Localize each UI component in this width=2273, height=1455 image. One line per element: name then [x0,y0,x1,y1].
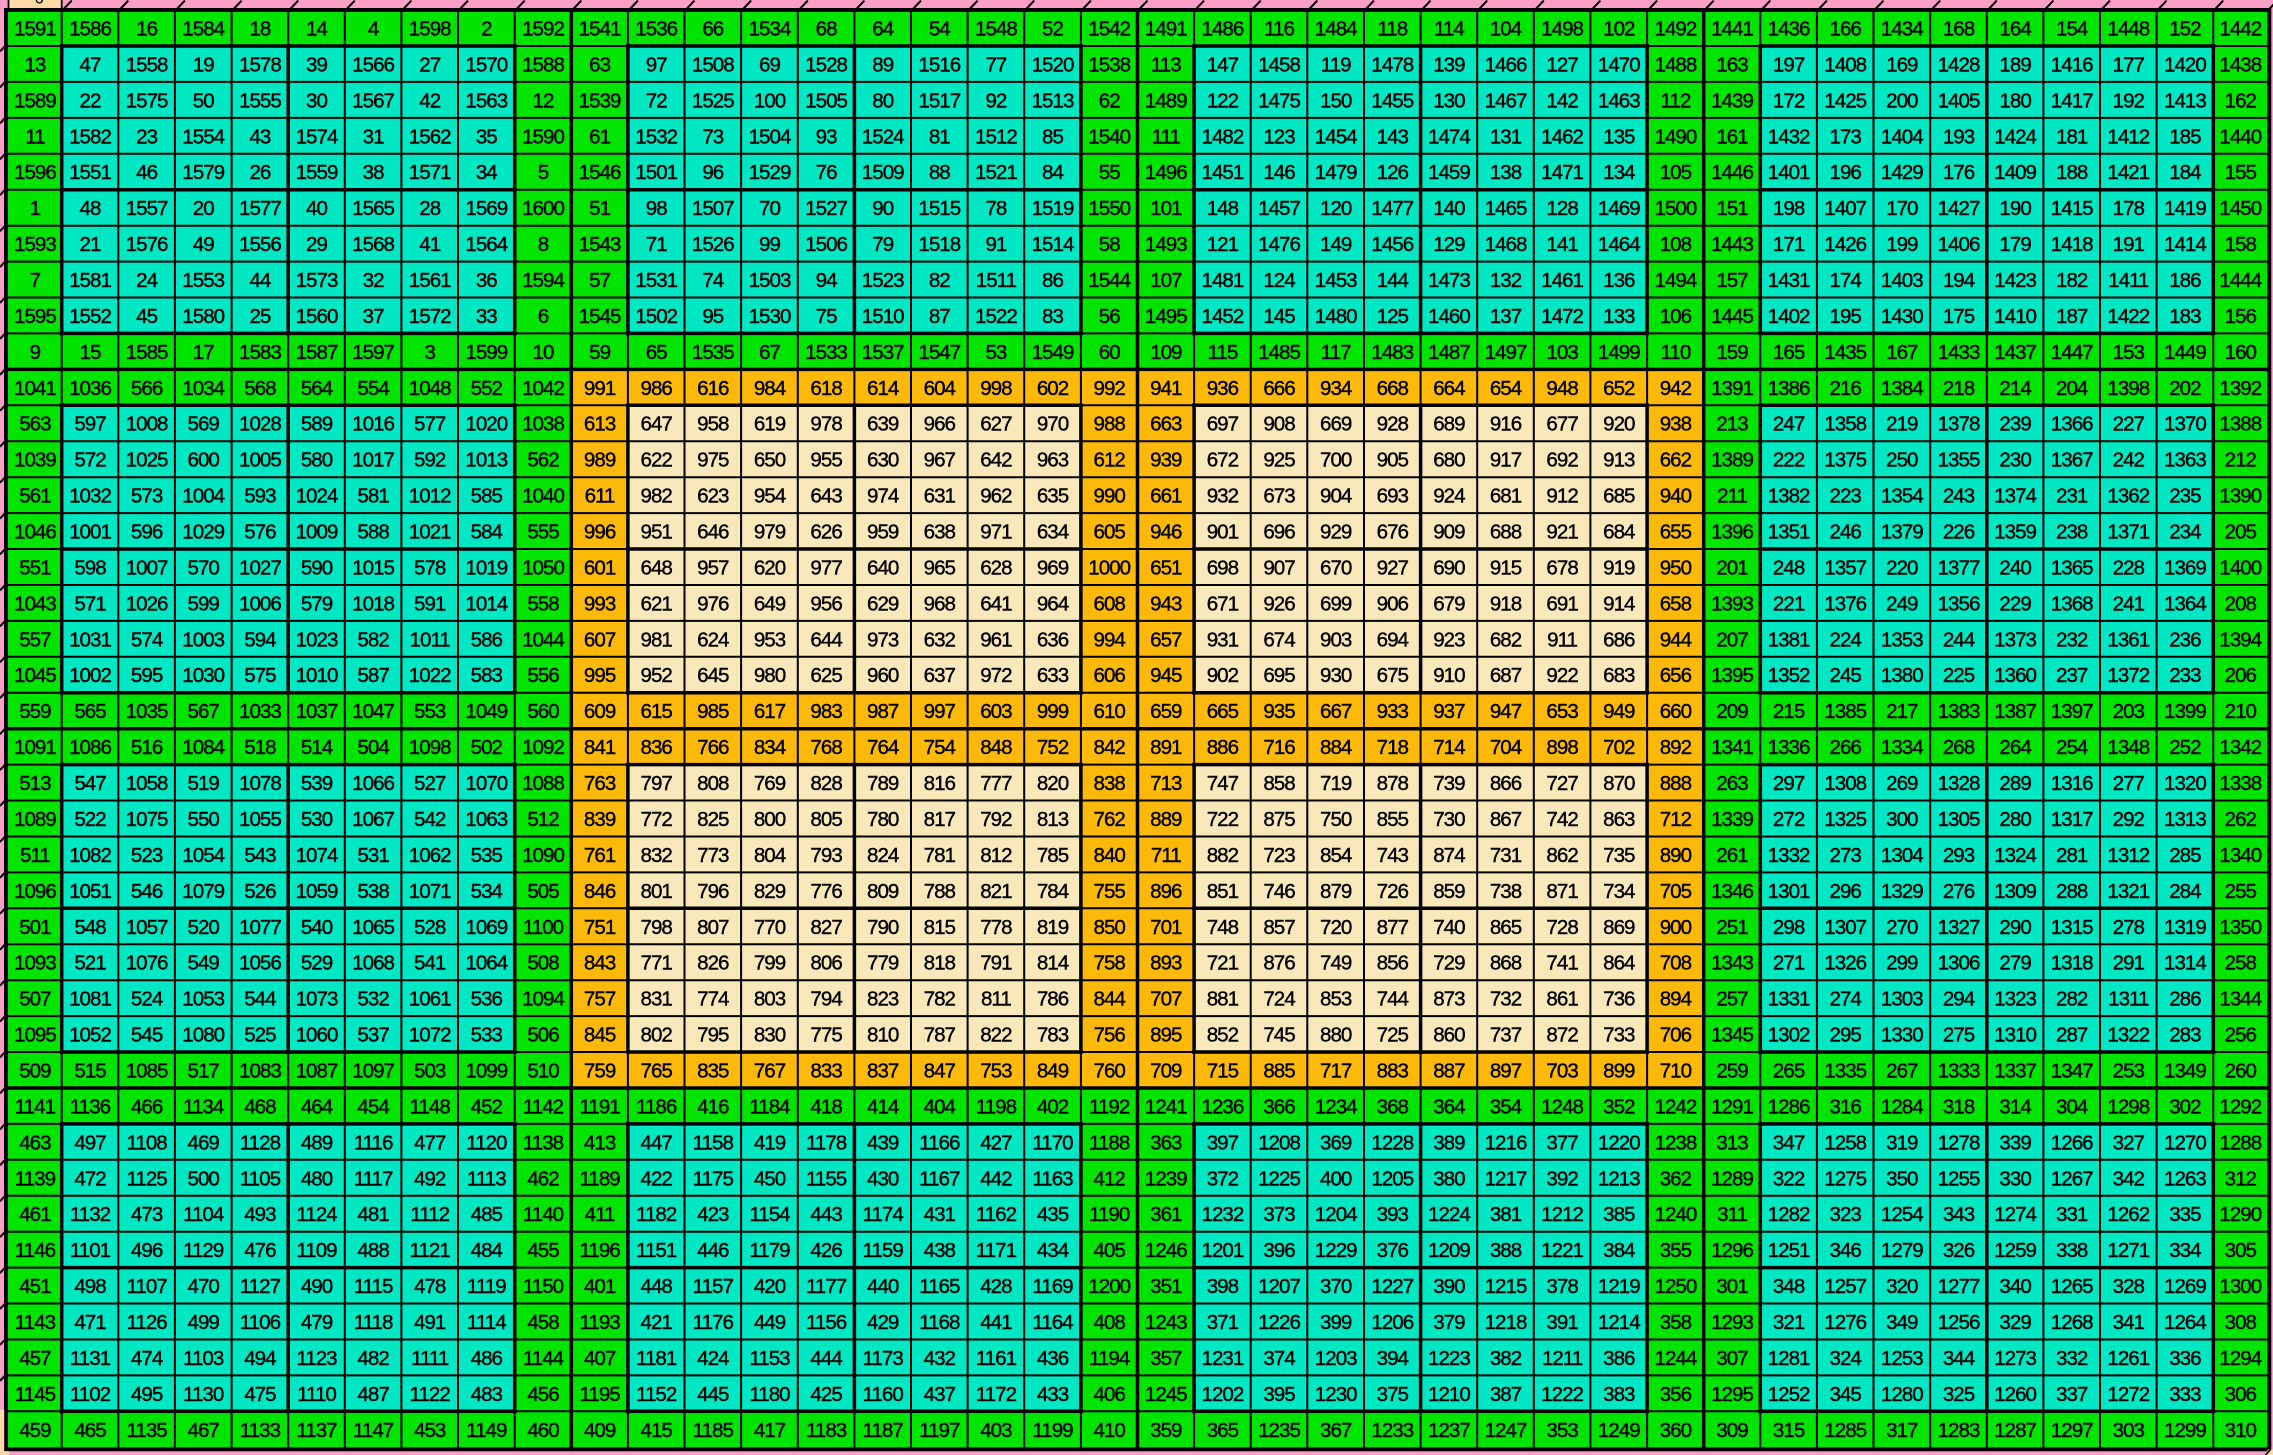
svg-text:698: 698 [1207,557,1239,580]
svg-text:1590: 1590 [522,125,564,148]
svg-text:1536: 1536 [635,18,677,41]
svg-text:849: 849 [1037,1060,1069,1083]
svg-text:1504: 1504 [749,125,791,148]
svg-text:789: 789 [867,772,899,795]
svg-text:1317: 1317 [2051,808,2093,831]
svg-text:1395: 1395 [1711,664,1753,687]
svg-text:110: 110 [1660,341,1690,364]
svg-text:1593: 1593 [14,233,56,256]
svg-text:1076: 1076 [126,952,168,975]
svg-text:688: 688 [1490,521,1522,544]
svg-text:1370: 1370 [2164,413,2206,436]
svg-text:1390: 1390 [2219,485,2261,508]
svg-text:1149: 1149 [466,1419,507,1442]
svg-text:1120: 1120 [466,1131,507,1154]
svg-text:1160: 1160 [863,1383,904,1406]
svg-text:754: 754 [924,736,956,759]
svg-text:1579: 1579 [182,161,224,184]
svg-text:25: 25 [249,305,270,328]
svg-text:59: 59 [589,341,610,364]
svg-text:227: 227 [2113,413,2145,436]
svg-text:1208: 1208 [1258,1131,1300,1154]
svg-text:1224: 1224 [1428,1203,1470,1226]
svg-text:1302: 1302 [1768,1024,1810,1047]
svg-text:1280: 1280 [1881,1383,1923,1406]
svg-text:548: 548 [74,916,106,939]
svg-text:877: 877 [1377,916,1409,939]
svg-text:229: 229 [1999,592,2031,615]
svg-text:778: 778 [980,916,1012,939]
svg-text:764: 764 [867,736,899,759]
svg-text:1598: 1598 [409,18,451,41]
svg-text:562: 562 [527,449,559,472]
svg-text:943: 943 [1150,592,1182,615]
svg-text:1568: 1568 [352,233,394,256]
svg-text:454: 454 [357,1095,389,1118]
svg-text:522: 522 [74,808,106,831]
svg-text:1223: 1223 [1428,1347,1470,1370]
svg-text:659: 659 [1150,700,1182,723]
svg-text:962: 962 [980,485,1012,508]
svg-text:960: 960 [867,664,899,687]
svg-text:876: 876 [1263,952,1295,975]
svg-text:159: 159 [1716,341,1748,364]
svg-text:913: 913 [1603,449,1635,472]
svg-text:285: 285 [2169,844,2201,867]
svg-text:429: 429 [867,1311,899,1334]
svg-text:974: 974 [867,485,899,508]
svg-text:235: 235 [2169,485,2201,508]
svg-text:889: 889 [1150,808,1182,831]
svg-text:917: 917 [1490,449,1522,472]
svg-text:1207: 1207 [1258,1275,1300,1298]
svg-text:333: 333 [2169,1383,2201,1406]
svg-text:466: 466 [131,1095,163,1118]
svg-text:714: 714 [1433,736,1465,759]
svg-text:1036: 1036 [69,377,111,400]
svg-text:619: 619 [754,413,786,436]
svg-text:1274: 1274 [1994,1203,2036,1226]
svg-text:1001: 1001 [69,521,111,544]
svg-text:993: 993 [584,592,616,615]
svg-text:1106: 1106 [240,1311,281,1334]
svg-text:1475: 1475 [1258,89,1300,112]
svg-text:1281: 1281 [1768,1347,1810,1370]
svg-text:1276: 1276 [1824,1311,1866,1334]
svg-text:453: 453 [414,1419,446,1442]
svg-text:1477: 1477 [1371,197,1413,220]
svg-text:1321: 1321 [2107,880,2149,903]
svg-text:987: 987 [867,700,899,723]
svg-text:309: 309 [1716,1419,1748,1442]
svg-text:461: 461 [19,1203,51,1226]
svg-text:282: 282 [2056,988,2088,1011]
svg-text:809: 809 [867,880,899,903]
svg-text:334: 334 [2169,1239,2201,1262]
svg-text:1112: 1112 [410,1203,449,1226]
svg-text:1580: 1580 [182,305,224,328]
svg-text:975: 975 [697,449,729,472]
svg-text:399: 399 [1320,1311,1352,1334]
svg-text:1198: 1198 [976,1095,1017,1118]
svg-text:992: 992 [1094,377,1126,400]
svg-text:1478: 1478 [1371,53,1413,76]
svg-text:1150: 1150 [523,1275,564,1298]
svg-text:1213: 1213 [1598,1167,1640,1190]
svg-text:1095: 1095 [14,1024,56,1047]
svg-text:494: 494 [244,1347,276,1370]
svg-text:432: 432 [924,1347,956,1370]
svg-text:1434: 1434 [1881,18,1923,41]
svg-text:493: 493 [244,1203,276,1226]
svg-text:760: 760 [1094,1060,1126,1083]
svg-text:458: 458 [527,1311,559,1334]
svg-text:651: 651 [1150,557,1182,580]
svg-text:1265: 1265 [2051,1275,2093,1298]
svg-text:712: 712 [1660,808,1692,831]
svg-text:362: 362 [1660,1167,1692,1190]
svg-text:1389: 1389 [1711,449,1753,472]
svg-text:193: 193 [1943,125,1975,148]
svg-text:819: 819 [1037,916,1069,939]
svg-text:540: 540 [301,916,333,939]
svg-text:426: 426 [810,1239,842,1262]
svg-text:1563: 1563 [465,89,507,112]
svg-text:82: 82 [929,269,950,292]
svg-text:181: 181 [2056,125,2088,148]
svg-text:582: 582 [357,628,389,651]
svg-text:440: 440 [867,1275,899,1298]
svg-text:390: 390 [1433,1275,1465,1298]
svg-text:1596: 1596 [14,161,56,184]
svg-text:1361: 1361 [2107,628,2149,651]
svg-text:1301: 1301 [1768,880,1810,903]
svg-text:395: 395 [1263,1383,1295,1406]
svg-text:352: 352 [1603,1095,1635,1118]
svg-text:1375: 1375 [1824,449,1866,472]
svg-text:242: 242 [2113,449,2145,472]
svg-text:343: 343 [1943,1203,1975,1226]
svg-text:74: 74 [702,269,723,292]
svg-text:893: 893 [1150,952,1182,975]
svg-text:500: 500 [188,1167,220,1190]
svg-text:1024: 1024 [296,485,338,508]
svg-text:771: 771 [641,952,673,975]
svg-text:559: 559 [19,700,51,723]
svg-text:75: 75 [816,305,837,328]
svg-text:198: 198 [1773,197,1805,220]
svg-text:471: 471 [74,1311,106,1334]
svg-text:706: 706 [1660,1024,1692,1047]
svg-text:666: 666 [1263,377,1295,400]
svg-text:1591: 1591 [14,18,56,41]
svg-text:1073: 1073 [296,988,338,1011]
svg-text:1341: 1341 [1711,736,1753,759]
svg-text:1009: 1009 [296,521,338,544]
svg-text:583: 583 [471,664,503,687]
svg-text:425: 425 [810,1383,842,1406]
svg-text:1299: 1299 [2164,1419,2206,1442]
svg-text:627: 627 [980,413,1012,436]
svg-text:199: 199 [1886,233,1918,256]
svg-text:576: 576 [244,521,276,544]
svg-text:373: 373 [1263,1203,1295,1226]
svg-text:773: 773 [697,844,729,867]
svg-text:1493: 1493 [1145,233,1187,256]
svg-text:843: 843 [584,952,616,975]
svg-text:1445: 1445 [1711,305,1753,328]
svg-text:163: 163 [1716,53,1748,76]
svg-text:527: 527 [414,772,446,795]
svg-text:1421: 1421 [2107,161,2149,184]
svg-text:1000: 1000 [1088,557,1130,580]
svg-text:478: 478 [414,1275,446,1298]
svg-text:772: 772 [641,808,673,831]
svg-text:740: 740 [1433,916,1465,939]
svg-text:419: 419 [754,1131,786,1154]
svg-text:482: 482 [357,1347,389,1370]
svg-text:857: 857 [1263,916,1295,939]
svg-text:321: 321 [1773,1311,1805,1334]
svg-text:574: 574 [131,628,163,651]
svg-text:1056: 1056 [239,952,281,975]
svg-text:1155: 1155 [806,1167,847,1190]
svg-text:369: 369 [1320,1131,1352,1154]
svg-text:1064: 1064 [465,952,507,975]
svg-text:687: 687 [1490,664,1522,687]
svg-text:1388: 1388 [2219,413,2261,436]
svg-text:1108: 1108 [126,1131,167,1154]
svg-text:420: 420 [754,1275,786,1298]
svg-text:310: 310 [2225,1419,2257,1442]
svg-text:532: 532 [357,988,389,1011]
svg-text:1085: 1085 [126,1060,168,1083]
svg-text:1575: 1575 [126,89,168,112]
svg-text:257: 257 [1716,988,1748,1011]
svg-text:117: 117 [1321,341,1351,364]
svg-text:693: 693 [1377,485,1409,508]
svg-text:58: 58 [1099,233,1120,256]
svg-text:929: 929 [1320,521,1352,544]
svg-text:803: 803 [754,988,786,1011]
svg-text:332: 332 [2056,1347,2088,1370]
svg-text:586: 586 [471,628,503,651]
svg-text:1539: 1539 [579,89,621,112]
svg-text:957: 957 [697,557,729,580]
svg-text:871: 871 [1546,880,1578,903]
svg-text:1380: 1380 [1881,664,1923,687]
svg-text:1453: 1453 [1315,269,1357,292]
svg-text:361: 361 [1150,1203,1182,1226]
svg-text:53: 53 [985,341,1006,364]
svg-text:551: 551 [19,557,51,580]
svg-text:595: 595 [131,664,163,687]
svg-text:1011: 1011 [410,628,451,651]
svg-text:563: 563 [19,413,51,436]
svg-text:815: 815 [924,916,956,939]
svg-text:220: 220 [1886,557,1918,580]
svg-text:745: 745 [1263,1024,1295,1047]
svg-text:1387: 1387 [1994,700,2036,723]
svg-text:442: 442 [980,1167,1012,1190]
svg-text:858: 858 [1263,772,1295,795]
svg-text:377: 377 [1546,1131,1578,1154]
svg-text:578: 578 [414,557,446,580]
svg-text:539: 539 [301,772,333,795]
svg-text:385: 385 [1603,1203,1635,1226]
svg-text:534: 534 [471,880,503,903]
svg-text:1136: 1136 [70,1095,111,1118]
svg-text:866: 866 [1490,772,1522,795]
svg-text:1027: 1027 [239,557,281,580]
svg-text:354: 354 [1490,1095,1522,1118]
svg-text:1291: 1291 [1711,1095,1753,1118]
svg-text:444: 444 [810,1347,842,1370]
svg-text:72: 72 [646,89,667,112]
svg-text:1573: 1573 [296,269,338,292]
svg-text:517: 517 [188,1060,220,1083]
svg-text:231: 231 [2056,485,2088,508]
svg-text:674: 674 [1263,628,1295,651]
svg-text:1428: 1428 [1938,53,1980,76]
svg-text:596: 596 [131,521,163,544]
svg-text:1519: 1519 [1032,197,1074,220]
svg-text:550: 550 [188,808,220,831]
svg-text:733: 733 [1603,1024,1635,1047]
svg-text:600: 600 [188,449,220,472]
svg-text:998: 998 [980,377,1012,400]
svg-text:567: 567 [188,700,220,723]
svg-text:769: 769 [754,772,786,795]
svg-text:958: 958 [697,413,729,436]
svg-text:1271: 1271 [2107,1239,2149,1262]
svg-text:255: 255 [2225,880,2257,903]
svg-text:938: 938 [1660,413,1692,436]
svg-text:949: 949 [1603,700,1635,723]
svg-text:1335: 1335 [1824,1060,1866,1083]
svg-text:1153: 1153 [749,1347,790,1370]
svg-text:901: 901 [1207,521,1239,544]
svg-text:1585: 1585 [126,341,168,364]
svg-text:401: 401 [584,1275,616,1298]
svg-text:616: 616 [697,377,729,400]
svg-text:340: 340 [1999,1275,2031,1298]
svg-text:1466: 1466 [1485,53,1527,76]
svg-text:1142: 1142 [523,1095,564,1118]
svg-text:664: 664 [1433,377,1465,400]
svg-text:436: 436 [1037,1347,1069,1370]
svg-text:801: 801 [641,880,673,903]
svg-text:546: 546 [131,880,163,903]
svg-text:1407: 1407 [1824,197,1866,220]
svg-text:224: 224 [1830,628,1862,651]
svg-text:836: 836 [641,736,673,759]
svg-text:389: 389 [1433,1131,1465,1154]
svg-text:357: 357 [1150,1347,1182,1370]
svg-text:746: 746 [1263,880,1295,903]
svg-text:1464: 1464 [1598,233,1640,256]
svg-text:1364: 1364 [2164,592,2206,615]
svg-text:73: 73 [702,125,723,148]
svg-text:294: 294 [1943,988,1975,1011]
svg-text:643: 643 [810,485,842,508]
svg-text:1371: 1371 [2107,521,2149,544]
svg-text:1217: 1217 [1485,1167,1527,1190]
svg-text:262: 262 [2225,808,2257,831]
svg-text:663: 663 [1150,413,1182,436]
svg-text:1022: 1022 [409,664,451,687]
svg-text:1516: 1516 [918,53,960,76]
svg-text:421: 421 [641,1311,673,1334]
svg-text:469: 469 [188,1131,220,1154]
svg-text:1549: 1549 [1032,341,1074,364]
svg-text:50: 50 [193,89,214,112]
svg-text:577: 577 [414,413,446,436]
svg-text:1368: 1368 [2051,592,2093,615]
svg-text:154: 154 [2056,18,2088,41]
svg-text:984: 984 [754,377,786,400]
svg-text:922: 922 [1546,664,1578,687]
svg-text:499: 499 [188,1311,220,1334]
svg-text:827: 827 [810,916,842,939]
svg-text:558: 558 [527,592,559,615]
svg-text:214: 214 [1999,377,2031,400]
svg-text:1202: 1202 [1201,1383,1243,1406]
svg-text:1492: 1492 [1654,18,1696,41]
svg-text:1588: 1588 [522,53,564,76]
svg-text:786: 786 [1037,988,1069,1011]
svg-text:182: 182 [2056,269,2088,292]
svg-text:502: 502 [471,736,503,759]
svg-text:393: 393 [1377,1203,1409,1226]
svg-text:423: 423 [697,1203,729,1226]
svg-text:1572: 1572 [409,305,451,328]
svg-text:1170: 1170 [1032,1131,1073,1154]
svg-text:639: 639 [867,413,899,436]
svg-text:252: 252 [2169,736,2201,759]
svg-text:523: 523 [131,844,163,867]
svg-text:1529: 1529 [749,161,791,184]
svg-text:1499: 1499 [1598,341,1640,364]
svg-text:1383: 1383 [1938,700,1980,723]
svg-text:351: 351 [1150,1275,1182,1298]
svg-text:1350: 1350 [2219,916,2261,939]
svg-text:299: 299 [1886,952,1918,975]
svg-text:1457: 1457 [1258,197,1300,220]
svg-text:216: 216 [1830,377,1862,400]
svg-text:697: 697 [1207,413,1239,436]
svg-text:481: 481 [357,1203,389,1226]
svg-text:681: 681 [1490,485,1522,508]
svg-text:452: 452 [471,1095,503,1118]
svg-text:1426: 1426 [1824,233,1866,256]
svg-text:806: 806 [810,952,842,975]
svg-text:1270: 1270 [2164,1131,2206,1154]
svg-text:694: 694 [1377,628,1409,651]
svg-text:433: 433 [1037,1383,1069,1406]
svg-text:617: 617 [754,700,786,723]
svg-text:1418: 1418 [2051,233,2093,256]
svg-text:1412: 1412 [2107,125,2149,148]
svg-text:959: 959 [867,521,899,544]
svg-text:1398: 1398 [2107,377,2149,400]
svg-text:1260: 1260 [1994,1383,2036,1406]
svg-text:155: 155 [2225,161,2257,184]
svg-text:1339: 1339 [1711,808,1753,831]
svg-text:989: 989 [584,449,616,472]
svg-text:873: 873 [1433,988,1465,1011]
svg-text:1004: 1004 [182,485,224,508]
